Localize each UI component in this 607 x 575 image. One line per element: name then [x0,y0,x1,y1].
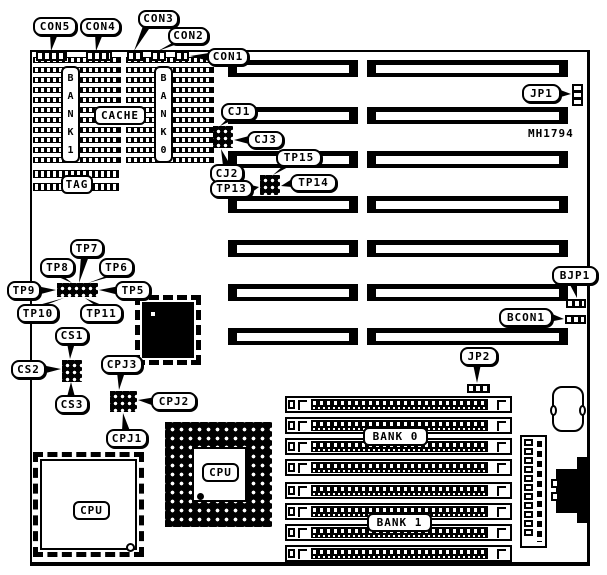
simm-bank0-label: BANK 0 [363,427,428,446]
jp2-jumper [467,384,490,393]
callout-leader-con4 [95,34,103,51]
part-number-text: MH1794 [528,127,574,140]
cj-jumper-block [213,126,233,148]
power-pin-cell [524,502,533,509]
simm-bank1-label: BANK 1 [367,513,432,532]
cs-jumper-block [62,360,82,382]
jp1-jumper [572,84,583,106]
callout-cpj3: CPJ3 [101,355,143,374]
callout-cpj1: CPJ1 [106,429,148,448]
simm-latch-left-hook [298,442,307,452]
simm-latch-left [288,486,295,495]
bjp1-jumper [566,299,586,308]
simm-latch-left-hook [298,549,307,559]
callout-con4: CON4 [80,18,121,36]
simm-latch-left-hook [298,400,307,410]
isa-slot-7-left-segment [228,328,358,345]
power-pin-cell [524,484,533,491]
simm-latch-left-hook [298,463,307,473]
isa-slot-1-right-segment [367,60,568,77]
simm-latch-left [288,463,295,472]
isa-slot-4-right-segment [367,196,568,213]
cpu-pga-pin1-dot [197,493,204,500]
callout-tp5: TP5 [115,281,151,300]
con5-connector [36,51,67,61]
simm-latch-right-hook [497,421,506,431]
simm-latch-right-hook [497,528,506,538]
callout-jp1: JP1 [522,84,561,103]
simm-contact-strip [311,399,488,410]
simm-latch-right-hook [497,400,506,410]
power-pin-cell [524,448,533,455]
power-pin-cell [524,475,533,482]
battery-notch-right [579,405,586,416]
callout-jp2: JP2 [460,347,498,366]
callout-bjp1: BJP1 [552,266,598,285]
cpu-qfp-label: CPU [73,501,110,520]
callout-cs3: CS3 [55,395,89,414]
callout-cs1: CS1 [55,327,89,345]
isa-slot-4-left-segment [228,196,358,213]
battery-outline [552,386,584,432]
callout-leader-con3 [134,26,151,51]
simm-latch-left-hook [298,507,307,517]
power-pin-cell [524,520,533,527]
callout-bcon1: BCON1 [499,308,553,327]
simm-contact-strip [311,485,488,496]
callout-tp7: TP7 [70,239,104,258]
con3-connector [127,51,143,61]
power-connector [520,435,547,548]
callout-cj3: CJ3 [247,131,284,149]
simm-latch-right-hook [497,463,506,473]
tag-label: TAG [61,175,93,194]
battery-notch-left [550,405,557,416]
con1-connector [175,51,189,61]
power-pin-cell [524,439,533,446]
cpu-pga-label: CPU [202,463,239,482]
callout-tp8: TP8 [40,258,75,277]
callout-cj1: CJ1 [221,103,257,121]
simm-contact-strip [311,462,488,473]
callout-con1: CON1 [207,48,249,66]
keyboard-connector-tab-top [551,479,559,488]
bank1-vertical-label: BANK1 [61,66,80,163]
callout-con2: CON2 [168,27,209,45]
callout-cs2: CS2 [11,360,46,379]
con2-connector [151,51,166,61]
callout-tp13: TP13 [210,180,253,198]
callout-tp15: TP15 [276,149,322,167]
isa-slot-7-right-segment [367,328,568,345]
power-connector-pins [537,441,542,542]
simm-socket-1 [285,396,512,413]
bank0-vertical-label: BANK0 [154,66,173,163]
isa-slot-2-right-segment [367,107,568,124]
bcon1-jumper [565,315,586,324]
chipset-pin1-dot [151,312,155,316]
simm-socket-4 [285,459,512,476]
motherboard-diagram: BANK1 BANK0 CACHE TAG MH1794 CPU CPU [0,0,607,575]
simm-latch-left [288,528,295,537]
callout-tp10: TP10 [17,304,59,323]
callout-leader-con5 [50,34,58,51]
simm-latch-left [288,421,295,430]
power-pin-cell [524,493,533,500]
isa-slot-6-right-segment [367,284,568,301]
callout-tp11: TP11 [80,304,123,323]
simm-contact-strip [311,548,488,559]
isa-slot-3-right-segment [367,151,568,168]
con4-connector [86,51,112,61]
simm-latch-left [288,400,295,409]
callout-tp14: TP14 [290,174,337,192]
simm-socket-5 [285,482,512,499]
callout-tp9: TP9 [7,281,41,300]
cpj-jumper-block [110,391,137,412]
simm-latch-right-hook [497,486,506,496]
power-pin-cell [524,511,533,518]
cpu-qfp-package: CPU [33,452,144,557]
power-pin-cell [524,529,533,536]
keyboard-connector-tab-bottom [551,492,559,501]
simm-socket-8 [285,545,512,562]
chipset-qfp [135,295,201,365]
callout-con3: CON3 [138,10,179,28]
simm-latch-left [288,507,295,516]
simm-latch-left [288,549,295,558]
simm-latch-left-hook [298,421,307,431]
simm-latch-left [288,442,295,451]
keyboard-connector-body [556,469,581,513]
tp-jumper-strip [57,283,98,297]
callout-con5: CON5 [33,17,77,36]
isa-slot-6-left-segment [228,284,358,301]
simm-latch-right-hook [497,507,506,517]
simm-latch-right-hook [497,442,506,452]
isa-slot-5-right-segment [367,240,568,257]
tp13-jumper-block [260,175,280,195]
simm-latch-left-hook [298,486,307,496]
cpu-pga-socket: CPU [165,422,272,527]
cpu-qfp-pin1-circle [126,543,135,552]
cache-label: CACHE [94,106,146,125]
power-pin-cell [524,466,533,473]
simm-latch-right-hook [497,549,506,559]
callout-cpj2: CPJ2 [151,392,197,411]
isa-slot-5-left-segment [228,240,358,257]
power-pin-cell [524,457,533,464]
callout-tp6: TP6 [99,258,134,277]
simm-latch-left-hook [298,528,307,538]
